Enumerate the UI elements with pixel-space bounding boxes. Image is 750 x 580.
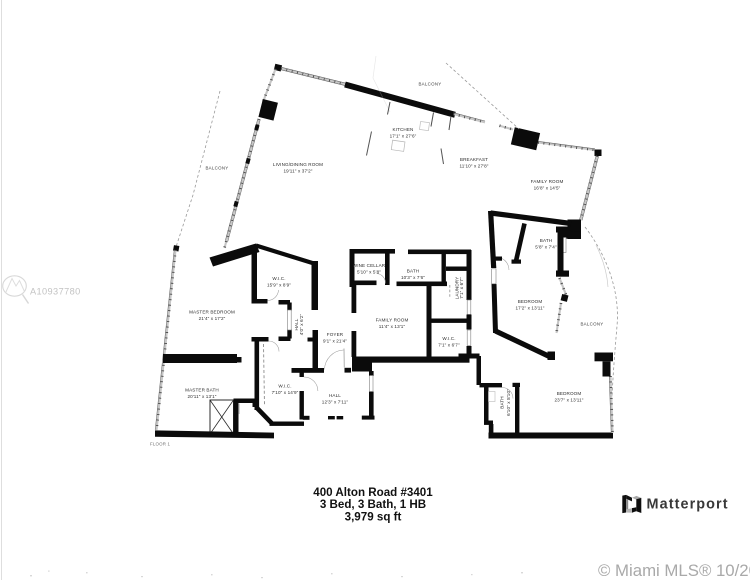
svg-text:W.I.C.: W.I.C. (278, 384, 291, 389)
svg-text:19'11" x 37'2": 19'11" x 37'2" (283, 169, 312, 174)
svg-text:6'10" x 8'10": 6'10" x 8'10" (506, 389, 511, 416)
svg-text:7'1" x 6'7": 7'1" x 6'7" (438, 343, 460, 348)
svg-text:BEDROOM: BEDROOM (518, 299, 543, 304)
svg-text:5'10" x 5'8": 5'10" x 5'8" (357, 270, 381, 275)
svg-text:WINE CELLAR: WINE CELLAR (353, 263, 386, 268)
svg-text:21'4" x 17'2": 21'4" x 17'2" (199, 316, 226, 321)
svg-text:11'4" x 13'1": 11'4" x 13'1" (379, 324, 406, 329)
svg-text:7'10" x 14'9": 7'10" x 14'9" (272, 390, 299, 395)
svg-text:11'10" x 27'8": 11'10" x 27'8" (459, 164, 488, 169)
svg-text:KITCHEN: KITCHEN (392, 127, 413, 132)
svg-text:MASTER BEDROOM: MASTER BEDROOM (189, 310, 235, 315)
svg-text:Matterport: Matterport (647, 497, 729, 513)
svg-text:FAMILY ROOM: FAMILY ROOM (531, 179, 564, 184)
svg-text:12'3" x 7'11": 12'3" x 7'11" (322, 400, 349, 405)
svg-text:BALCONY: BALCONY (418, 82, 441, 87)
svg-text:5'8" x 7'4": 5'8" x 7'4" (535, 245, 557, 250)
svg-text:FLOOR 1: FLOOR 1 (150, 442, 171, 447)
svg-text:BALCONY: BALCONY (205, 166, 228, 171)
svg-text:3 Bed, 3 Bath, 1 HB: 3 Bed, 3 Bath, 1 HB (320, 498, 426, 511)
svg-text:16'8" x 14'5": 16'8" x 14'5" (534, 186, 561, 191)
svg-text:MASTER BATH: MASTER BATH (185, 388, 219, 393)
svg-text:A10937780: A10937780 (30, 287, 81, 297)
svg-text:LIVING/DINING ROOM: LIVING/DINING ROOM (273, 162, 323, 167)
svg-text:W.I.C.: W.I.C. (272, 276, 285, 281)
svg-text:BALCONY: BALCONY (580, 322, 603, 327)
svg-text:10'3" x 7'6": 10'3" x 7'6" (401, 275, 425, 280)
svg-text:3,979 sq ft: 3,979 sq ft (345, 511, 402, 524)
svg-text:© Miami MLS® 10/2020: © Miami MLS® 10/2020 (598, 561, 750, 580)
svg-text:9'1" x 21'4": 9'1" x 21'4" (323, 339, 347, 344)
svg-text:BEDROOM: BEDROOM (557, 391, 582, 396)
svg-text:15'9" x 8'9": 15'9" x 8'9" (267, 283, 291, 288)
svg-text:BREAKFAST: BREAKFAST (460, 157, 488, 162)
svg-text:23'7" x 13'11": 23'7" x 13'11" (554, 398, 583, 403)
svg-text:FAMILY ROOM: FAMILY ROOM (376, 318, 409, 323)
svg-text:BATH: BATH (407, 269, 419, 274)
svg-text:20'11" x 13'1": 20'11" x 13'1" (187, 394, 216, 399)
svg-text:BATH: BATH (500, 396, 505, 408)
svg-text:17'1" x 27'6": 17'1" x 27'6" (390, 134, 417, 139)
svg-text:W.I.C.: W.I.C. (442, 336, 455, 341)
svg-text:17'2" x 13'11": 17'2" x 13'11" (515, 306, 544, 311)
svg-text:7'1" x 6'7": 7'1" x 6'7" (459, 277, 464, 299)
svg-text:4'0" x 6'2": 4'0" x 6'2" (299, 314, 304, 336)
svg-text:HALL: HALL (329, 393, 341, 398)
svg-text:BATH: BATH (540, 238, 552, 243)
svg-text:FOYER: FOYER (327, 332, 344, 337)
